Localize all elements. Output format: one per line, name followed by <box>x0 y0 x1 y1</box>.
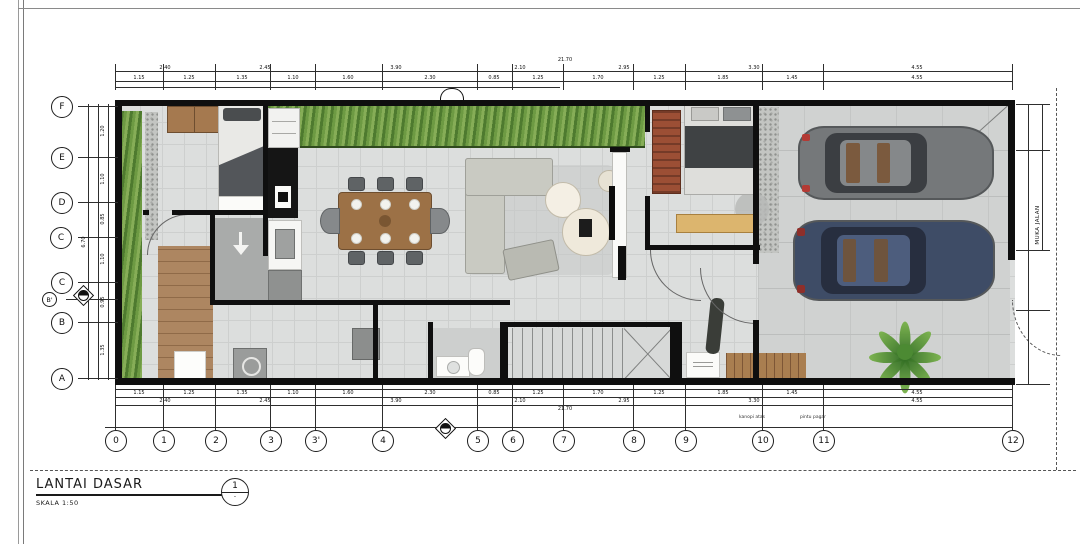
wall <box>143 210 149 215</box>
right-annotation: MUKA JALAN <box>1035 205 1041 244</box>
dim-bottom-span: 4.55 <box>911 398 922 404</box>
grid-bubble-col-8: 8 <box>623 430 645 452</box>
planter-strip-left <box>121 111 142 382</box>
entry-mat <box>686 352 720 378</box>
floor-plan-sheet: 21.70 2.40 2.45 3.90 2.10 2.95 3.30 4.55… <box>0 0 1080 544</box>
shower-room-floor <box>215 218 268 300</box>
wall <box>172 210 268 215</box>
wall <box>115 100 122 385</box>
section-marker-left <box>73 285 94 306</box>
dim-top-seg: 4.55 <box>911 75 922 81</box>
boundary-line-right <box>1056 88 1057 470</box>
grid-bubble-row-f: F <box>51 96 73 118</box>
wall <box>618 246 626 280</box>
coffee-table-large <box>562 208 610 256</box>
bathroom-vanity <box>436 356 470 377</box>
grid-bubble-row-d: D <box>51 192 73 214</box>
dim-bottom-seg: 1.25 <box>653 390 664 396</box>
dim-bottom-seg: 0.85 <box>488 390 499 396</box>
dim-bottom-span: 2.45 <box>259 398 270 404</box>
frame-top-line <box>18 8 1080 9</box>
dim-bottom-span: 2.95 <box>618 398 629 404</box>
dim-left-seg: 1.20 <box>100 125 106 136</box>
wall <box>1008 100 1015 260</box>
tv <box>609 186 615 240</box>
gate-swing-arc <box>1012 300 1061 356</box>
grid-bubble-row-c2: C <box>51 272 73 294</box>
dim-bottom-seg: 1.70 <box>592 390 603 396</box>
dim-left-seg: 1.35 <box>100 344 106 355</box>
dining-chair <box>377 177 394 191</box>
dim-bottom-span: 2.40 <box>159 398 170 404</box>
dim-top-span: 2.95 <box>618 65 629 71</box>
stairs-landing <box>624 328 672 380</box>
dim-bottom-seg: 1.45 <box>786 390 797 396</box>
dim-bottom-total: 21.70 <box>558 406 572 412</box>
dim-top-seg: 1.85 <box>717 75 728 81</box>
dim-left-total: 6.70 <box>81 236 87 247</box>
dining-chair <box>406 251 423 265</box>
dim-bottom-seg: 4.55 <box>911 390 922 396</box>
detail-reference-bubble: 1 - <box>221 478 249 506</box>
wall <box>500 322 508 384</box>
title-underline <box>36 494 222 496</box>
dim-top-span: 2.40 <box>159 65 170 71</box>
canopy-marker <box>440 88 464 100</box>
wardrobe-bedroom1 <box>167 106 221 133</box>
wall <box>210 300 510 305</box>
bench-bedroom2 <box>676 214 758 233</box>
dim-top-total: 21.70 <box>558 57 572 63</box>
dim-top-span: 2.45 <box>259 65 270 71</box>
stairs-treads <box>512 328 624 380</box>
wall <box>263 100 268 256</box>
dim-top-span: 4.55 <box>911 65 922 71</box>
grid-bubble-row-b: B <box>51 312 73 334</box>
kitchen-sink-counter <box>268 220 302 270</box>
dining-armchair-left <box>320 208 340 234</box>
wall <box>610 147 630 152</box>
wall <box>508 322 678 327</box>
bed-bedroom1 <box>218 104 268 198</box>
note-above-grid-11: pintu pagar <box>800 415 826 420</box>
dim-bottom-seg: 1.25 <box>183 390 194 396</box>
dim-bottom-seg: 1.35 <box>236 390 247 396</box>
wardrobe-bedroom2 <box>652 110 681 194</box>
dim-top-span: 3.30 <box>748 65 759 71</box>
dim-bottom-span: 3.30 <box>748 398 759 404</box>
wall <box>118 100 1015 106</box>
boundary-line-bottom <box>30 470 1076 471</box>
dim-bottom-seg: 1.85 <box>717 390 728 396</box>
drain-arrow-stem <box>239 232 242 246</box>
gravel-strip-left <box>145 112 158 240</box>
dining-chair <box>348 177 365 191</box>
hedge-top <box>268 104 645 148</box>
dim-top-seg: 1.45 <box>786 75 797 81</box>
dim-bottom-seg: 1.15 <box>133 390 144 396</box>
dim-top-span: 2.10 <box>514 65 525 71</box>
dim-bottom-seg: 1.25 <box>532 390 543 396</box>
grid-bubble-row-a: A <box>51 368 73 390</box>
gravel-strip-carport <box>758 107 779 253</box>
dim-top-seg: 0.85 <box>488 75 499 81</box>
grid-bubble-col-11: 11 <box>813 430 835 452</box>
wall <box>645 196 650 250</box>
car-navy <box>793 220 995 301</box>
frame-left-line-inner <box>23 0 24 544</box>
dim-top-seg: 1.70 <box>592 75 603 81</box>
dining-chair <box>406 177 423 191</box>
grid-bubble-col-5: 5 <box>467 430 489 452</box>
dim-bottom-seg: 1.10 <box>287 390 298 396</box>
toilet <box>468 348 485 376</box>
dining-armchair-right <box>430 208 450 234</box>
dim-top-seg: 1.25 <box>532 75 543 81</box>
bench-bedroom1 <box>218 196 266 211</box>
wood-deck-entry <box>726 353 806 380</box>
dim-top-seg: 1.25 <box>183 75 194 81</box>
grid-bubble-col-7: 7 <box>553 430 575 452</box>
wall <box>210 213 215 305</box>
dining-chair <box>377 251 394 265</box>
wall <box>753 100 759 264</box>
wall <box>670 322 682 384</box>
dim-top-seg: 1.15 <box>133 75 144 81</box>
wall <box>645 100 650 132</box>
dim-top-seg: 1.60 <box>342 75 353 81</box>
grid-bubble-col-12: 12 <box>1002 430 1024 452</box>
grid-bubble-col-6: 6 <box>502 430 524 452</box>
dining-chair <box>348 251 365 265</box>
dim-top-seg: 1.35 <box>236 75 247 81</box>
wall <box>373 305 378 382</box>
kitchen-base-cabinet <box>268 270 302 304</box>
grid-bubble-col-2: 2 <box>205 430 227 452</box>
dim-top-seg: 1.10 <box>287 75 298 81</box>
drawing-scale: SKALA 1:50 <box>36 499 79 507</box>
dining-table <box>338 192 432 250</box>
dim-top-span: 3.90 <box>390 65 401 71</box>
sofa-l-horizontal <box>465 158 553 196</box>
grid-bubble-col-0: 0 <box>105 430 127 452</box>
grid-bubble-col-3p: 3' <box>305 430 327 452</box>
kitchen-stove-counter <box>268 148 298 218</box>
grid-bubble-col-9: 9 <box>675 430 697 452</box>
car-gray <box>798 126 994 200</box>
dim-left-seg: 1.10 <box>100 253 106 264</box>
grid-bubble-col-10: 10 <box>752 430 774 452</box>
bed-bedroom2 <box>684 103 758 195</box>
dim-bottom-span: 3.90 <box>390 398 401 404</box>
dim-left-seg: 0.85 <box>100 213 106 224</box>
dim-bottom-seg: 2.30 <box>424 390 435 396</box>
washing-machine <box>233 348 267 382</box>
grid-bubble-col-1: 1 <box>153 430 175 452</box>
dim-bottom-seg: 1.60 <box>342 390 353 396</box>
dim-top-seg: 2.30 <box>424 75 435 81</box>
dim-top-seg: 1.25 <box>653 75 664 81</box>
frame-left-line-outer <box>18 0 19 544</box>
wall <box>645 245 760 250</box>
dim-left-seg: 1.10 <box>100 173 106 184</box>
grid-bubble-row-b-prime: B' <box>42 292 57 307</box>
wall <box>428 322 433 382</box>
grid-bubble-col-4: 4 <box>372 430 394 452</box>
grid-bubble-col-3: 3 <box>260 430 282 452</box>
wall <box>753 320 759 385</box>
drawing-title: LANTAI DASAR <box>36 477 143 492</box>
grid-bubble-row-c1: C <box>50 227 72 249</box>
dim-left-seg: 0.95 <box>100 296 106 307</box>
fridge <box>268 108 300 148</box>
drain-arrow-head <box>233 245 249 255</box>
dim-bottom-span: 2.10 <box>514 398 525 404</box>
wall <box>115 378 1015 385</box>
grid-bubble-row-e: E <box>51 147 73 169</box>
note-above-grid-10: kanopi atas <box>739 415 765 420</box>
section-marker-bottom <box>435 418 456 439</box>
